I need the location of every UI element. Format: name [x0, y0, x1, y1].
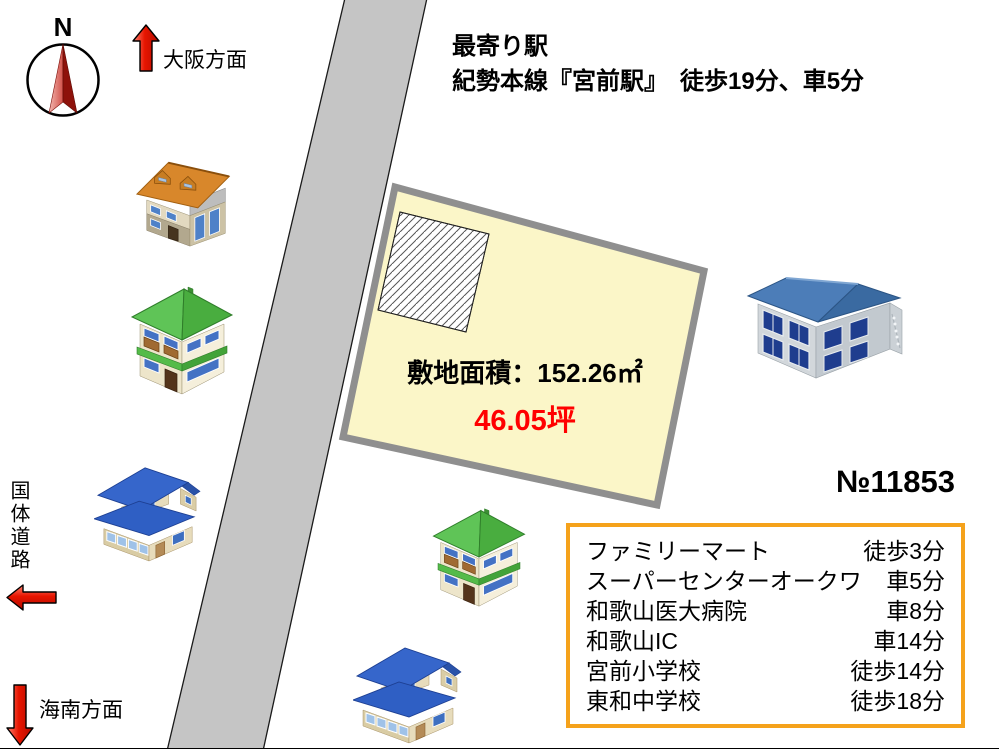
down-arrow-icon	[6, 684, 34, 746]
house-blue-roof-icon	[353, 638, 465, 744]
facility-row: ファミリーマート 徒歩3分	[586, 536, 945, 566]
up-arrow-icon	[132, 24, 160, 72]
left-arrow-icon	[6, 584, 58, 611]
facility-name: スーパーセンターオークワ	[586, 566, 862, 596]
facility-row: 和歌山IC 車14分	[586, 626, 945, 656]
compass-north-label: N	[48, 12, 78, 43]
facility-name: 和歌山医大病院	[586, 596, 747, 626]
road-name-label: 国体道路	[5, 480, 31, 572]
facility-row: 東和中学校 徒歩18分	[586, 686, 945, 716]
plot-tsubo-label: 46.05坪	[375, 397, 675, 439]
facility-time: 徒歩18分	[850, 686, 945, 716]
plot-area-label: 敷地面積：152.26㎡	[375, 353, 675, 390]
house-blue-roof-icon	[94, 458, 204, 562]
facility-time: 車8分	[886, 596, 945, 626]
station-info-line1: 最寄り駅	[452, 29, 864, 64]
osaka-direction-label: 大阪方面	[163, 44, 247, 74]
compass-icon	[23, 40, 103, 120]
facility-row: 和歌山医大病院 車8分	[586, 596, 945, 626]
facility-time: 車14分	[873, 626, 945, 656]
facility-row: 宮前小学校 徒歩14分	[586, 656, 945, 686]
house-green-roof-icon	[431, 506, 527, 608]
location-map: N 大阪方面 海南方面 国体道路 最寄り駅 紀勢本線『宮前駅』 徒歩19分、車5…	[0, 0, 999, 749]
house-green-roof-icon	[130, 284, 234, 396]
facility-time: 徒歩14分	[850, 656, 945, 686]
facility-name: 宮前小学校	[586, 656, 701, 686]
facility-time: 徒歩3分	[863, 536, 945, 566]
facility-row: スーパーセンターオークワ 車5分	[586, 566, 945, 596]
facilities-box: ファミリーマート 徒歩3分 スーパーセンターオークワ 車5分 和歌山医大病院 車…	[566, 523, 965, 728]
apartment-building-icon	[746, 256, 906, 391]
facility-name: 東和中学校	[586, 686, 701, 716]
facility-time: 車5分	[886, 566, 945, 596]
station-info: 最寄り駅 紀勢本線『宮前駅』 徒歩19分、車5分	[452, 29, 864, 99]
house-orange-roof-icon	[133, 150, 241, 248]
facility-name: 和歌山IC	[586, 626, 678, 656]
kainan-direction-label: 海南方面	[39, 694, 123, 724]
station-info-line2: 紀勢本線『宮前駅』 徒歩19分、車5分	[452, 64, 864, 99]
listing-number: №11853	[815, 464, 955, 500]
facility-name: ファミリーマート	[586, 536, 770, 566]
